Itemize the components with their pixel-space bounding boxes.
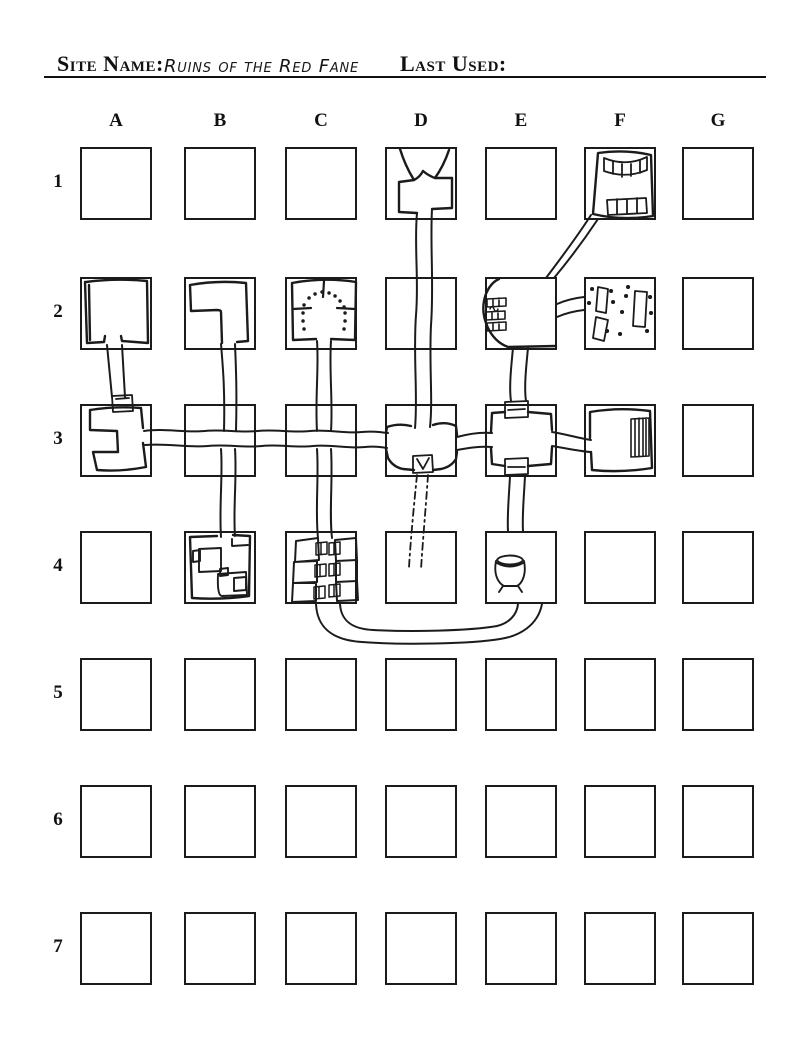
cell-A5 — [80, 658, 152, 731]
cell-E2 — [485, 277, 557, 350]
cell-B3 — [184, 404, 256, 477]
cell-F6 — [584, 785, 656, 858]
site-name-value: Ruins of the Red Fane — [164, 56, 359, 77]
cell-D6 — [385, 785, 457, 858]
cell-G6 — [682, 785, 754, 858]
cell-D5 — [385, 658, 457, 731]
cell-D3 — [385, 404, 457, 477]
cell-C7 — [285, 912, 357, 985]
row-label: 1 — [40, 171, 76, 193]
cell-D1 — [385, 147, 457, 220]
cell-E7 — [485, 912, 557, 985]
cell-G1 — [682, 147, 754, 220]
cell-F1 — [584, 147, 656, 220]
row-label: 2 — [40, 301, 76, 323]
row-label: 3 — [40, 428, 76, 450]
cell-D4 — [385, 531, 457, 604]
cell-C2 — [285, 277, 357, 350]
cell-A7 — [80, 912, 152, 985]
column-label: D — [385, 110, 457, 132]
column-label: B — [184, 110, 256, 132]
cell-C3 — [285, 404, 357, 477]
column-label: C — [285, 110, 357, 132]
cell-A4 — [80, 531, 152, 604]
cell-G3 — [682, 404, 754, 477]
cell-E3 — [485, 404, 557, 477]
cell-A2 — [80, 277, 152, 350]
cell-B5 — [184, 658, 256, 731]
row-label: 7 — [40, 936, 76, 958]
cell-E5 — [485, 658, 557, 731]
cell-A1 — [80, 147, 152, 220]
row-label: 4 — [40, 555, 76, 577]
cell-E1 — [485, 147, 557, 220]
cell-C5 — [285, 658, 357, 731]
cell-G7 — [682, 912, 754, 985]
cell-G5 — [682, 658, 754, 731]
corridor-f1-e2-diagonal — [546, 215, 598, 278]
cell-F7 — [584, 912, 656, 985]
cell-D7 — [385, 912, 457, 985]
cell-E4 — [485, 531, 557, 604]
header-underline — [44, 76, 766, 78]
cell-G2 — [682, 277, 754, 350]
cell-B4 — [184, 531, 256, 604]
column-label: A — [80, 110, 152, 132]
corridor-c4-e4-loop — [316, 604, 542, 644]
corridor-e2-e3 — [510, 348, 528, 401]
cell-F3 — [584, 404, 656, 477]
cell-C6 — [285, 785, 357, 858]
corridor-e2-f2 — [557, 297, 584, 317]
cell-F4 — [584, 531, 656, 604]
cell-B7 — [184, 912, 256, 985]
cell-F2 — [584, 277, 656, 350]
cell-B2 — [184, 277, 256, 350]
column-label: G — [682, 110, 754, 132]
column-label: E — [485, 110, 557, 132]
last-used-label: Last Used: — [400, 51, 507, 77]
cell-A3 — [80, 404, 152, 477]
cell-B1 — [184, 147, 256, 220]
cell-E6 — [485, 785, 557, 858]
corridor-e3-e4 — [508, 476, 525, 531]
cell-D2 — [385, 277, 457, 350]
row-label: 5 — [40, 682, 76, 704]
dungeon-map-sheet: Site Name: Ruins of the Red Fane Last Us… — [0, 0, 802, 1056]
column-label: F — [584, 110, 656, 132]
cell-B6 — [184, 785, 256, 858]
cell-A6 — [80, 785, 152, 858]
row-label: 6 — [40, 809, 76, 831]
site-name-label: Site Name: — [57, 51, 164, 77]
cell-F5 — [584, 658, 656, 731]
corridor-a2-a3 — [107, 345, 125, 397]
cell-G4 — [682, 531, 754, 604]
cell-C4 — [285, 531, 357, 604]
cell-C1 — [285, 147, 357, 220]
